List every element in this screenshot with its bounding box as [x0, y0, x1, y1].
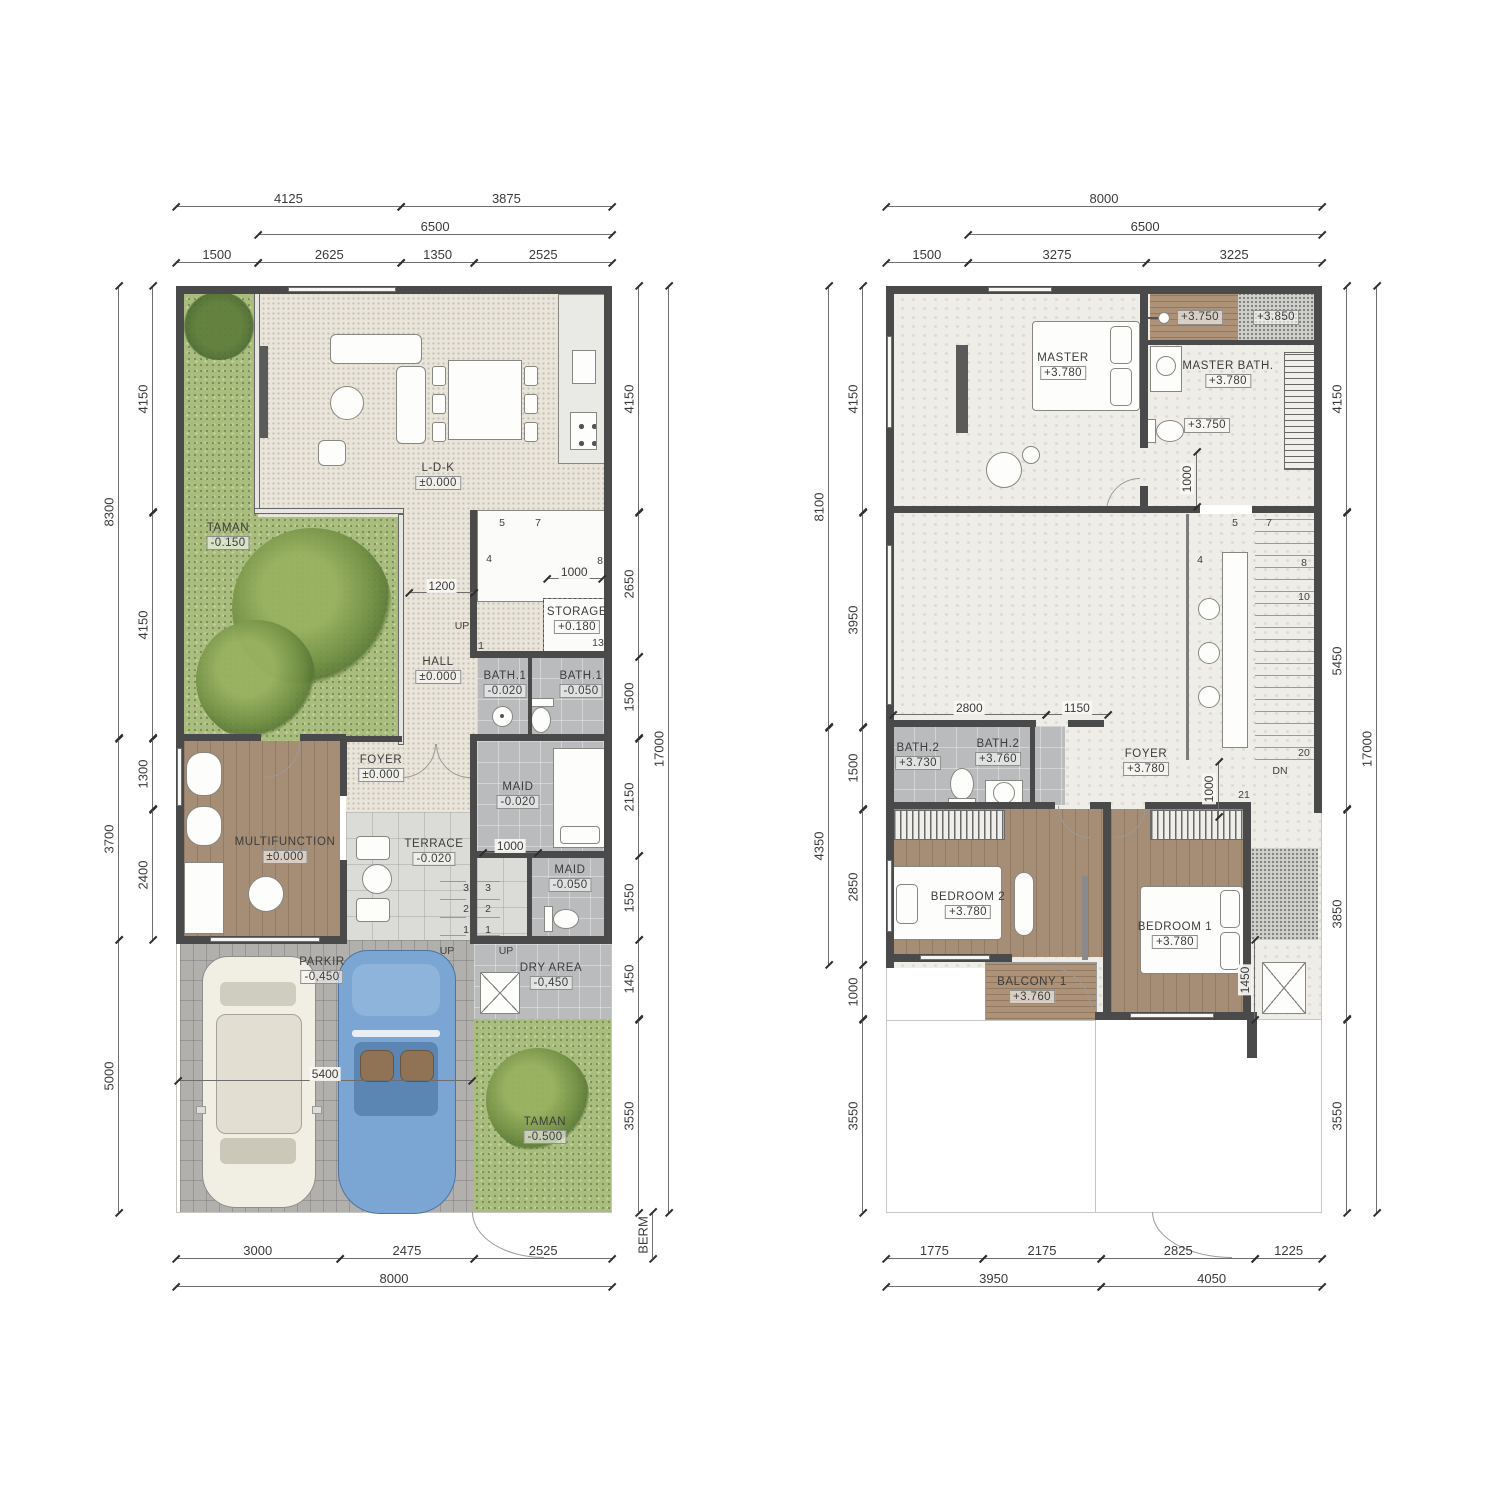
dimension-label: 3850: [1330, 900, 1345, 929]
dim-inline: 1000: [1218, 762, 1219, 817]
span: DRY AREA: [520, 962, 583, 975]
lv: +3.780: [1040, 366, 1086, 381]
span: HALL: [422, 656, 453, 669]
stair-number: 20: [1298, 747, 1310, 759]
boundary-line: [611, 944, 612, 1212]
span: BATH.1: [559, 670, 602, 683]
span: PARKIR: [299, 956, 345, 969]
chair: [432, 366, 446, 386]
span: MAID: [554, 864, 585, 877]
wall: [340, 736, 402, 742]
dimension-label: 17000: [1360, 731, 1375, 767]
dim-chain: 1775217528251225: [886, 1258, 1322, 1259]
dimension-label: 4050: [1197, 1271, 1226, 1286]
dimension-segment: 8000: [176, 1286, 612, 1287]
cabinet: [184, 862, 224, 934]
wardrobe: [893, 810, 1005, 840]
window: [988, 287, 1052, 292]
lv: -0.150: [206, 536, 249, 551]
dimension-label: 2400: [136, 860, 151, 889]
dimension-segment: BERM: [652, 1212, 653, 1258]
dimension-segment: 3550: [638, 1019, 639, 1212]
dimension-segment: 1450: [1254, 940, 1255, 1019]
washing-machine: [480, 972, 520, 1014]
dimension-label: 3550: [846, 1101, 861, 1130]
wall: [886, 720, 1036, 727]
dimension-label: 1000: [846, 977, 861, 1006]
stair-number: 7: [535, 517, 541, 529]
wall: [176, 286, 184, 944]
tree-small: [196, 620, 316, 740]
dimension-segment: 3875: [401, 206, 612, 207]
dim-chain-berm: BERM: [652, 1212, 653, 1258]
dimension-segment: 1550: [638, 856, 639, 940]
dimension-label: 2825: [1164, 1243, 1193, 1258]
stair-number: 10: [1298, 591, 1310, 603]
dimension-segment: 8100: [828, 286, 829, 727]
lv: ±0.000: [415, 476, 461, 491]
span: MASTER: [1037, 352, 1089, 365]
basin: [1156, 356, 1176, 376]
dimension-label: 1500: [912, 247, 941, 262]
dimension-label: 5450: [1330, 646, 1345, 675]
car-mirror: [312, 1106, 322, 1114]
gravel-roof: [1251, 848, 1318, 940]
dim-chain: 41253875: [176, 206, 612, 207]
lv: -0.020: [483, 684, 526, 699]
dim-chain: 81004350: [828, 286, 829, 965]
pillow: [1110, 368, 1132, 406]
dimension-label: 4350: [812, 832, 827, 861]
bench: [1014, 872, 1034, 936]
dimension-label: 3550: [1330, 1101, 1345, 1130]
car-mirror: [196, 1106, 206, 1114]
dn-label: DN: [1272, 765, 1287, 777]
up-label: UP: [440, 945, 455, 957]
dim-chain: 8000: [176, 1286, 612, 1287]
dimension-segment: 1775: [886, 1258, 983, 1259]
wall: [470, 510, 477, 651]
toilet-bowl: [531, 707, 551, 733]
toilet-tank: [1147, 419, 1156, 443]
span: BATH.1: [483, 670, 526, 683]
dimension-segment: 5400: [178, 1080, 472, 1081]
span: STORAGE: [547, 606, 607, 619]
sofa: [330, 334, 422, 364]
dim-inline: 1000: [483, 852, 538, 853]
wall: [886, 506, 1322, 513]
coffee-table: [330, 386, 364, 420]
wall: [470, 734, 612, 741]
dimension-label: 3000: [243, 1243, 272, 1258]
dimension-segment: 5450: [1346, 512, 1347, 809]
dining-table: [448, 360, 522, 440]
dimension-segment: 4150: [152, 512, 153, 738]
window: [887, 545, 892, 705]
room-label-maid2: MAID-0.050: [548, 864, 591, 892]
dimension-label: 1450: [622, 965, 637, 994]
room-label-storage: STORAGE+0.180: [547, 606, 607, 634]
chair: [524, 366, 538, 386]
stair-rail: [1186, 514, 1189, 760]
dimension-label: 3950: [846, 605, 861, 634]
skylight-hatch: [1262, 962, 1306, 1014]
stair-number: 4: [1197, 554, 1203, 566]
dimension-segment: 1000: [862, 965, 863, 1020]
level-label-shower: +3.750: [1177, 310, 1223, 325]
lv: -0.050: [548, 878, 591, 893]
step-number: 2: [485, 903, 491, 915]
dimension-label: 2525: [529, 247, 558, 262]
lounge-chair: [986, 452, 1022, 488]
stool: [1198, 642, 1220, 664]
dimension-label: 4150: [622, 385, 637, 414]
terrace-table: [362, 864, 392, 894]
window: [920, 955, 990, 960]
chair: [432, 394, 446, 414]
span: TAMAN: [524, 1116, 566, 1129]
boundary-line: [886, 1212, 1322, 1213]
dimension-segment: 2800: [893, 714, 1046, 715]
wardrobe: [1284, 352, 1318, 470]
span: BATH.2: [976, 738, 1019, 751]
stair-treads: [1255, 514, 1315, 760]
dimension-label: 3225: [1220, 247, 1249, 262]
lv: +3.850: [1253, 310, 1299, 325]
stair-number: 5: [499, 517, 505, 529]
dimension-label: 5400: [310, 1067, 341, 1081]
wall: [340, 860, 347, 944]
room-label-terrace: TERRACE-0.020: [404, 838, 463, 866]
dimension-label: 3550: [622, 1101, 637, 1130]
room-label-balcony: BALCONY 1+3.760: [997, 976, 1067, 1004]
dimension-label: 3275: [1043, 247, 1072, 262]
car-seat: [400, 1050, 434, 1082]
dimension-segment: 1500: [176, 262, 258, 263]
step-number: 1: [485, 924, 491, 936]
lv: +3.760: [975, 752, 1021, 767]
up-label: UP: [499, 945, 514, 957]
pillow: [560, 826, 600, 844]
room-label-bath2b: BATH.2+3.760: [975, 738, 1021, 766]
lv: -0.500: [523, 1130, 566, 1145]
wall: [1103, 802, 1111, 1020]
dimension-segment: 3950: [886, 1286, 1101, 1287]
toilet-bowl: [1156, 420, 1184, 442]
dimension-segment: 1000: [1218, 762, 1219, 817]
dimension-segment: 3700: [118, 738, 119, 940]
window: [887, 860, 892, 932]
dimension-segment: 1500: [886, 262, 968, 263]
lv: +3.750: [1184, 418, 1230, 433]
dimension-label: 2525: [529, 1243, 558, 1258]
sink: [993, 782, 1015, 804]
dimension-label: 4150: [1330, 385, 1345, 414]
dimension-label: 1350: [423, 247, 452, 262]
dim-chain: 415039501500285010003550: [862, 286, 863, 1212]
dim-chain: 6500: [968, 234, 1322, 235]
dimension-segment: 2525: [474, 1258, 612, 1259]
window: [210, 937, 320, 942]
car-trunk: [352, 964, 440, 1016]
dimension-segment: 4050: [1101, 1286, 1322, 1287]
dimension-label: 8300: [102, 498, 117, 527]
dimension-segment: 17000: [668, 286, 669, 1213]
wall: [470, 734, 477, 944]
dimension-segment: 4150: [1346, 286, 1347, 512]
dimension-label: 6500: [1131, 219, 1160, 234]
stove: [570, 412, 597, 450]
dimension-label: 1150: [1062, 701, 1092, 715]
boundary-line: [886, 968, 887, 1212]
lv: +3.780: [1205, 374, 1251, 389]
dimension-segment: 2525: [474, 262, 612, 263]
dimension-segment: 2175: [983, 1258, 1102, 1259]
dim-inline: 1000: [547, 578, 602, 579]
wall: [470, 936, 612, 944]
span: MAID: [502, 781, 533, 794]
dimension-label: 6500: [421, 219, 450, 234]
dimension-label: 1000: [1202, 774, 1216, 805]
boundary-line: [1251, 1019, 1321, 1020]
wall: [1140, 286, 1148, 448]
span: TERRACE: [404, 838, 463, 851]
wall: [1145, 802, 1251, 809]
boundary-line: [1095, 1020, 1096, 1212]
wall: [1146, 340, 1322, 345]
lv: +3.760: [1009, 990, 1055, 1005]
span: BALCONY 1: [997, 976, 1067, 989]
step-number: 1: [463, 924, 469, 936]
dimension-segment: 2475: [340, 1258, 475, 1259]
dimension-segment: 1200: [409, 592, 474, 593]
wall: [528, 658, 532, 734]
dimension-label: 8100: [812, 492, 827, 521]
pillow: [896, 884, 918, 924]
dimension-label: 4150: [136, 385, 151, 414]
lv: +0.180: [554, 620, 600, 635]
dimension-segment: 8000: [886, 206, 1322, 207]
dimension-label: 2625: [315, 247, 344, 262]
room-label-taman: TAMAN-0.150: [206, 522, 249, 550]
glass-wall: [398, 514, 404, 745]
step-number: 3: [485, 882, 491, 894]
dimension-label: 1775: [920, 1243, 949, 1258]
stair-number: 5: [1232, 517, 1238, 529]
dimension-label: 1500: [622, 683, 637, 712]
dimension-label: 2475: [392, 1243, 421, 1258]
wall: [1314, 286, 1322, 813]
span: BATH.2: [896, 742, 939, 755]
dimension-label: 2850: [846, 872, 861, 901]
car-windshield: [220, 1138, 296, 1164]
glass-wall: [254, 508, 404, 514]
room-label-hall: HALL±0.000: [415, 656, 461, 684]
room-label-bath2a: BATH.2+3.730: [895, 742, 941, 770]
span: MASTER BATH.: [1182, 360, 1273, 373]
dimension-label: 17000: [652, 731, 667, 767]
dimension-segment: 6500: [258, 234, 612, 235]
chair: [524, 394, 538, 414]
stair-number: 8: [1301, 557, 1307, 569]
dimension-label: 1000: [495, 839, 526, 853]
room-label-dry: DRY AREA-0,450: [520, 962, 583, 990]
window: [177, 748, 182, 806]
dimension-label: 1000: [559, 565, 590, 579]
wall: [1030, 726, 1035, 805]
toilet-bowl: [950, 768, 974, 800]
dim-chain: 6500: [258, 234, 612, 235]
dimension-label: 8000: [380, 1271, 409, 1286]
dimension-label: 1500: [202, 247, 231, 262]
pillow: [1110, 326, 1132, 364]
dim-chain: 1500262513502525: [176, 262, 612, 263]
dimension-segment: 3850: [1346, 809, 1347, 1019]
dimension-segment: 3225: [1146, 262, 1322, 263]
dimension-segment: 4150: [152, 286, 153, 512]
dimension-label: 1500: [846, 754, 861, 783]
wardrobe: [1150, 810, 1246, 840]
dim-chain: 17000: [1376, 286, 1377, 1213]
wall: [527, 858, 532, 936]
dim-inline: 28001150: [893, 714, 1108, 715]
dimension-label: 2800: [954, 701, 985, 715]
dimension-label: 3875: [492, 191, 521, 206]
lv: +3.780: [945, 905, 991, 920]
dim-chain: 4150415013002400: [152, 286, 153, 940]
round-table: [248, 876, 284, 912]
car-windshield: [352, 1030, 440, 1037]
dimension-label: BERM: [636, 1216, 651, 1254]
dimension-label: 1200: [426, 579, 457, 593]
dimension-label: 4150: [136, 611, 151, 640]
terrace-chair: [356, 898, 390, 922]
glass-wall: [254, 292, 260, 510]
lv: ±0.000: [415, 670, 461, 685]
dimension-segment: 2150: [638, 738, 639, 855]
wall: [886, 286, 1322, 294]
dimension-segment: 1450: [638, 940, 639, 1019]
up-label: UP: [455, 620, 470, 632]
span: TAMAN: [207, 522, 249, 535]
shower-head-icon: [1158, 312, 1170, 324]
room-label-bedroom1: BEDROOM 1+3.780: [1138, 921, 1212, 949]
boundary-line: [176, 940, 177, 1212]
stair-number: 4: [486, 553, 492, 565]
shower-arm: [1148, 317, 1158, 319]
lv: +3.750: [1177, 310, 1223, 325]
dimension-label: 4125: [274, 191, 303, 206]
dimension-segment: 1000: [483, 852, 538, 853]
dimension-segment: 3550: [1346, 1019, 1347, 1212]
mirror: [1082, 876, 1088, 960]
bench: [186, 752, 222, 796]
room-label-ldk: L-D-K±0.000: [415, 462, 461, 490]
dim-inline: 5400: [178, 1080, 472, 1081]
dimension-segment: 1500: [862, 727, 863, 809]
dimension-label: 2175: [1028, 1243, 1057, 1258]
stair-number: 13: [592, 637, 604, 649]
stair-main: [477, 510, 612, 602]
lv: +3.730: [895, 756, 941, 771]
dimension-segment: 6500: [968, 234, 1322, 235]
dimension-segment: 1000: [1196, 452, 1197, 507]
chair: [432, 422, 446, 442]
side-table: [1022, 446, 1040, 464]
span: FOYER: [1125, 748, 1168, 761]
stool: [1198, 686, 1220, 708]
lv: +3.780: [1152, 935, 1198, 950]
dimension-segment: 3000: [176, 1258, 340, 1259]
dim-chain: 8000: [886, 206, 1322, 207]
dimension-segment: 2850: [862, 809, 863, 964]
dim-inline: 1000: [1196, 452, 1197, 507]
room-label-foyer-u: FOYER+3.780: [1123, 748, 1169, 776]
shrub: [181, 292, 257, 360]
dimension-segment: 5000: [118, 940, 119, 1213]
room-label-master: MASTER+3.780: [1037, 352, 1089, 380]
dimension-label: 1225: [1274, 1243, 1303, 1258]
kitchen-sink: [572, 350, 596, 384]
dim-chain: 830037005000: [118, 286, 119, 1212]
dashed-line: [543, 600, 544, 652]
room-label-taman2: TAMAN-0.500: [523, 1116, 566, 1144]
car-roof: [216, 1014, 302, 1134]
car-rear-window: [220, 982, 296, 1006]
room-label-multifunction: MULTIFUNCTION±0.000: [235, 836, 336, 864]
dim-chain: 17000: [668, 286, 669, 1213]
room-label-bath1a: BATH.1-0.020: [483, 670, 526, 698]
window: [887, 336, 892, 428]
boundary-line: [886, 1020, 1095, 1021]
lv: ±0.000: [358, 768, 404, 783]
wall: [1068, 720, 1104, 727]
span: BEDROOM 1: [1138, 921, 1212, 934]
terrace-chair: [356, 836, 390, 860]
dim-chain: 39504050: [886, 1286, 1322, 1287]
wall: [340, 741, 347, 796]
wall: [470, 651, 612, 658]
dashed-line: [543, 598, 612, 599]
dimension-segment: 4350: [828, 727, 829, 964]
dimension-segment: 1500: [638, 657, 639, 739]
span: BEDROOM 2: [931, 891, 1005, 904]
dimension-label: 1300: [136, 759, 151, 788]
step-number: 3: [463, 882, 469, 894]
dimension-segment: 3950: [862, 512, 863, 727]
room-label-bedroom2: BEDROOM 2+3.780: [931, 891, 1005, 919]
dim-inline: 1200: [409, 592, 474, 593]
dimension-segment: 2825: [1101, 1258, 1255, 1259]
pillow: [1220, 932, 1240, 970]
dimension-segment: 1300: [152, 738, 153, 809]
window: [288, 287, 396, 292]
dimension-segment: 1000: [547, 578, 602, 579]
pouf: [318, 440, 346, 466]
dim-chain: 300024752525: [176, 1258, 612, 1259]
stair-number: 1: [478, 640, 484, 652]
dimension-label: 3700: [102, 825, 117, 854]
lv: -0,450: [529, 976, 572, 991]
dimension-segment: 1150: [1046, 714, 1109, 715]
dimension-segment: 4150: [638, 286, 639, 512]
stair-opening: [1200, 505, 1252, 514]
dot: [500, 714, 504, 718]
window: [1130, 1013, 1214, 1018]
dim-chain: 4150545038503550: [1346, 286, 1347, 1212]
dimension-segment: 2400: [152, 809, 153, 940]
span: MULTIFUNCTION: [235, 836, 336, 849]
